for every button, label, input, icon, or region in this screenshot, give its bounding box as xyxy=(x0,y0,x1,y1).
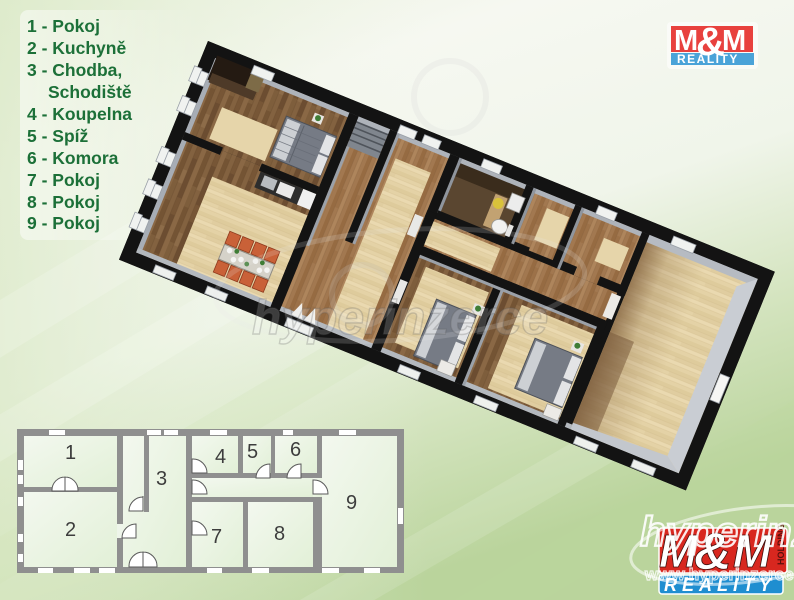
svg-text:Schodiště: Schodiště xyxy=(48,82,132,102)
svg-text:hyperinzerce: hyperinzerce xyxy=(640,508,794,555)
svg-text:4: 4 xyxy=(215,446,226,468)
svg-text:6: 6 xyxy=(290,439,301,461)
svg-text:3: 3 xyxy=(156,468,167,490)
svg-text:1 - Pokoj: 1 - Pokoj xyxy=(27,16,100,36)
svg-text:9 - Pokoj: 9 - Pokoj xyxy=(27,213,100,233)
svg-text:4 - Koupelna: 4 - Koupelna xyxy=(27,104,132,124)
svg-text:8: 8 xyxy=(274,523,285,545)
svg-text:REALITY: REALITY xyxy=(677,52,739,66)
svg-text:7: 7 xyxy=(211,526,222,548)
svg-text:8 - Pokoj: 8 - Pokoj xyxy=(27,192,100,212)
svg-text:www.hyperinzerce.cz: www.hyperinzerce.cz xyxy=(644,565,794,584)
svg-text:9: 9 xyxy=(346,492,357,514)
svg-text:3 - Chodba,: 3 - Chodba, xyxy=(27,60,122,80)
svg-text:hyperinzerce: hyperinzerce xyxy=(252,292,548,345)
svg-text:5 - Spíž: 5 - Spíž xyxy=(27,126,89,146)
svg-text:5: 5 xyxy=(247,441,258,463)
svg-text:2 - Kuchyně: 2 - Kuchyně xyxy=(27,38,126,58)
svg-text:1: 1 xyxy=(65,442,76,464)
svg-text:2: 2 xyxy=(65,519,76,541)
svg-text:7 - Pokoj: 7 - Pokoj xyxy=(27,170,100,190)
svg-text:6 - Komora: 6 - Komora xyxy=(27,148,119,168)
